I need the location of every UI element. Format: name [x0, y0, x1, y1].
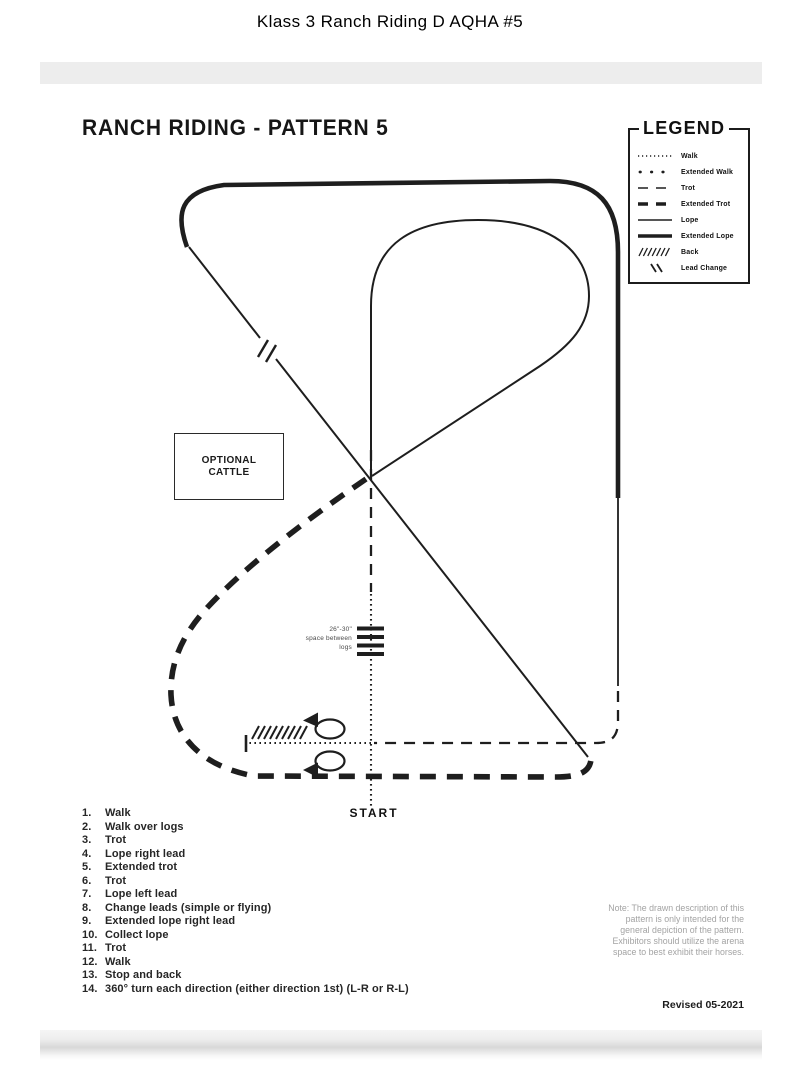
logs-note-line: 26"-30" — [252, 625, 352, 634]
pattern-note-line: general depiction of the pattern. — [544, 925, 744, 936]
revised-label: Revised 05-2021 — [662, 999, 744, 1011]
lead-change-marks — [258, 340, 276, 362]
optional-cattle-box: OPTIONAL CATTLE — [174, 433, 284, 500]
logs-note-line: logs — [252, 643, 352, 652]
maneuver-item: 11.Trot — [82, 942, 442, 956]
maneuver-item: 8.Change leads (simple or flying) — [82, 902, 442, 916]
maneuver-item: 5.Extended trot — [82, 861, 442, 875]
maneuver-item: 13.Stop and back — [82, 969, 442, 983]
maneuver-item: 7.Lope left lead — [82, 888, 442, 902]
lope-diagonal-path — [189, 247, 588, 757]
logs-spacing-note: 26"-30" space between logs — [252, 625, 352, 652]
pattern-note: Note: The drawn description of this patt… — [544, 903, 744, 958]
log-bar — [357, 652, 384, 656]
trot-dashed-path — [374, 691, 618, 743]
maneuver-item: 10.Collect lope — [82, 929, 442, 943]
maneuver-list: 1.Walk 2.Walk over logs 3.Trot 4.Lope ri… — [82, 807, 442, 996]
maneuver-item: 4.Lope right lead — [82, 848, 442, 862]
pattern-note-line: Exhibitors should utilize the arena — [544, 936, 744, 947]
optional-cattle-label: OPTIONAL CATTLE — [193, 455, 265, 479]
screenshot-root: { "page_title": "Klass 3 Ranch Riding D … — [0, 0, 800, 1092]
logs-note-line: space between — [252, 634, 352, 643]
maneuver-item: 3.Trot — [82, 834, 442, 848]
pattern-note-line: space to best exhibit their horses. — [544, 947, 744, 958]
log-bar — [357, 627, 384, 631]
maneuver-item: 2.Walk over logs — [82, 821, 442, 835]
maneuver-item: 14.360° turn each direction (either dire… — [82, 983, 442, 997]
pattern-note-line: pattern is only intended for the — [544, 914, 744, 925]
pattern-note-line: Note: The drawn description of this — [544, 903, 744, 914]
lope-teardrop-loop-path — [371, 220, 589, 476]
maneuver-item: 1.Walk — [82, 807, 442, 821]
log-bar — [357, 635, 384, 639]
maneuver-item: 9.Extended lope right lead — [82, 915, 442, 929]
log-bar — [357, 644, 384, 648]
back-hatch-symbol — [252, 726, 307, 739]
turn-arrow-top-icon — [303, 713, 345, 739]
maneuver-item: 6.Trot — [82, 875, 442, 889]
maneuver-item: 12.Walk — [82, 956, 442, 970]
